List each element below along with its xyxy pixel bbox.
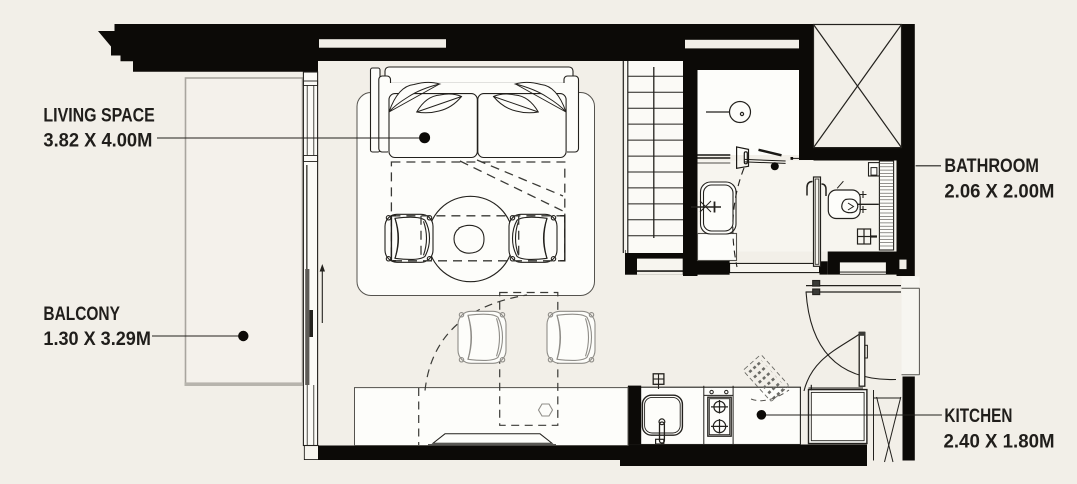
- svg-text:1.30 X 3.29M: 1.30 X 3.29M: [43, 328, 150, 350]
- svg-text:3.82 X 4.00M: 3.82 X 4.00M: [43, 130, 152, 152]
- svg-text:2.06 X 2.00M: 2.06 X 2.00M: [944, 181, 1054, 203]
- svg-text:KITCHEN: KITCHEN: [944, 405, 1012, 427]
- svg-text:BATHROOM: BATHROOM: [944, 155, 1039, 177]
- svg-text:LIVING SPACE: LIVING SPACE: [43, 105, 154, 127]
- svg-text:BALCONY: BALCONY: [43, 303, 120, 325]
- svg-text:2.40 X 1.80M: 2.40 X 1.80M: [944, 431, 1055, 453]
